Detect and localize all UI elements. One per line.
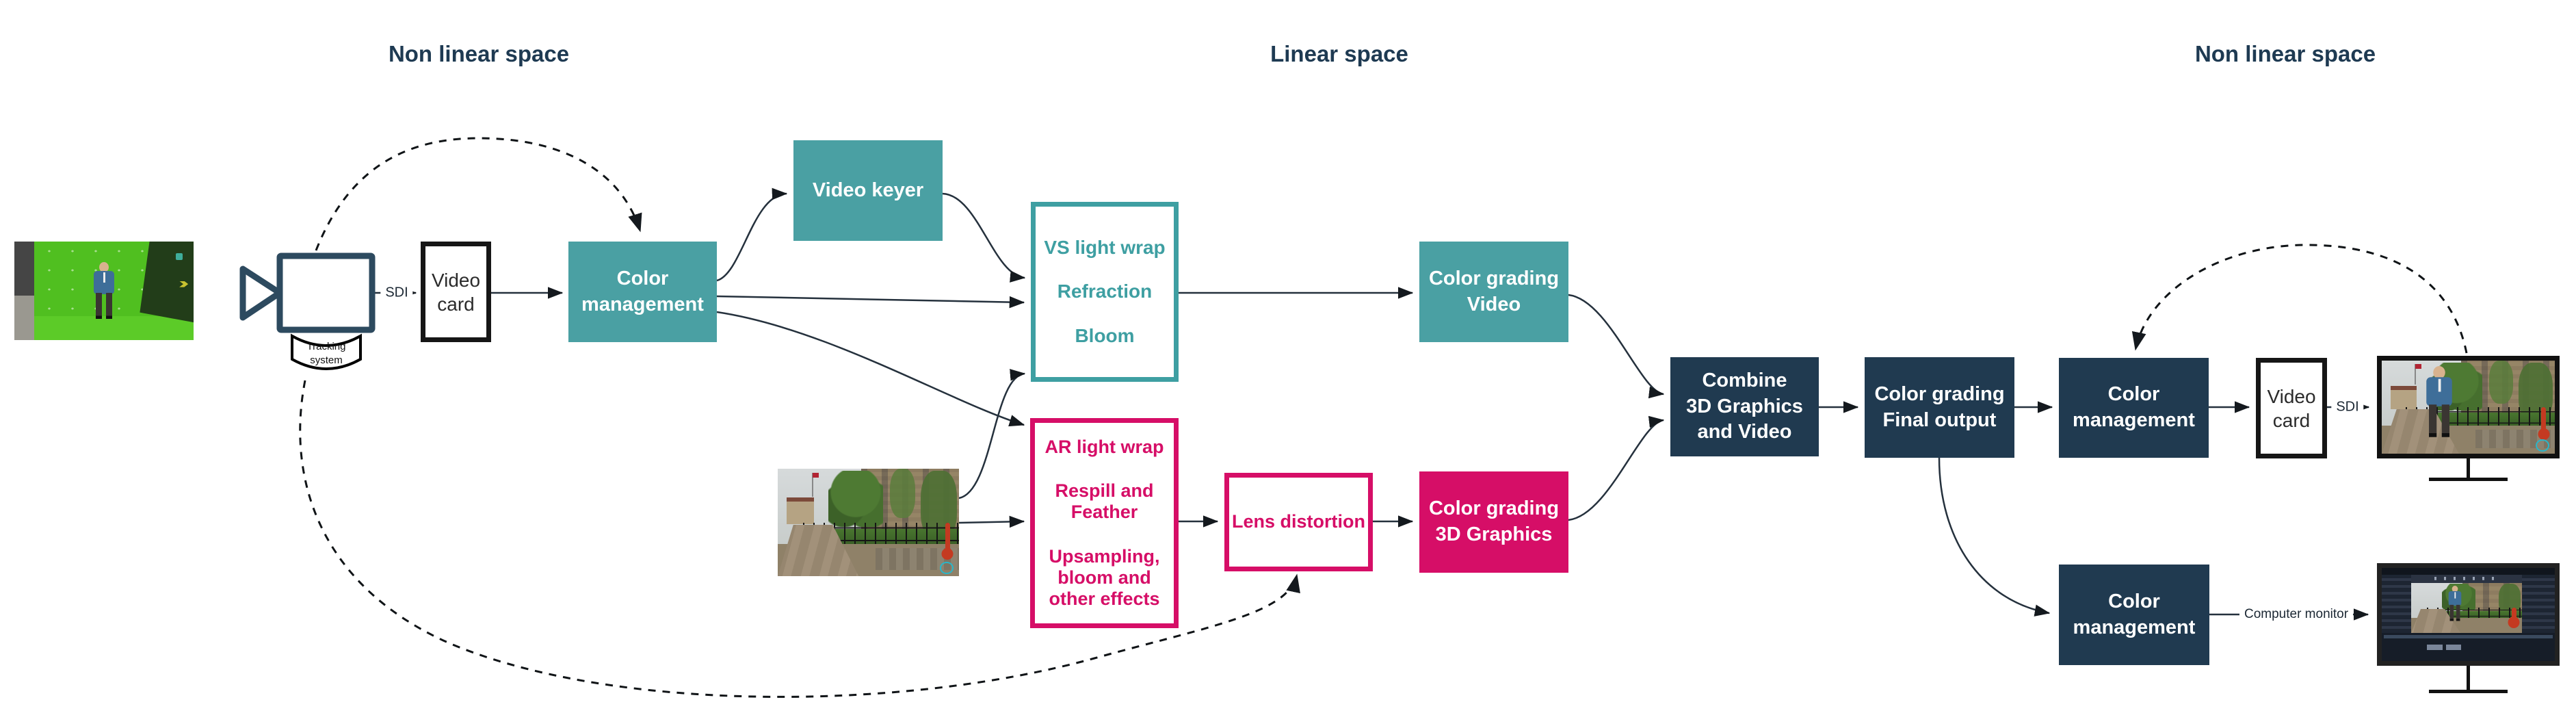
arrow-colormgmt-to-ar <box>717 312 1024 425</box>
color-management-in-box: Color management <box>568 242 717 342</box>
color-grading-video-box: Color grading Video <box>1419 242 1568 342</box>
3d-graphics-photo <box>778 469 959 576</box>
dashed-arrow-monitor-to-colormgmt <box>2135 245 2467 353</box>
monitor-stand-neck <box>2467 458 2470 478</box>
color-grading-3d-box: Color grading 3D Graphics <box>1419 471 1568 573</box>
arrow-colormgmt-to-keyer <box>717 194 787 281</box>
camera-icon <box>243 256 372 330</box>
header-linear: Linear space <box>1270 41 1408 67</box>
viewport-presenter <box>2445 586 2464 623</box>
arrow-keyer-to-vs <box>943 194 1025 278</box>
atom-graphic <box>940 562 954 574</box>
arrow-graphics-to-vs <box>959 374 1025 498</box>
broadcast-monitor <box>2377 356 2560 458</box>
studio-wall <box>14 242 34 340</box>
computer-monitor-screen <box>2377 563 2560 666</box>
panel-logo-icon <box>176 253 183 260</box>
color-management-out-box: Color management <box>2059 358 2209 458</box>
respill-feather-label: Respill and Feather <box>1055 480 1153 523</box>
presenter-figure <box>89 262 119 322</box>
upsampling-label: Upsampling, bloom and other effects <box>1049 546 1159 610</box>
computer-monitor-label: Computer monitor <box>2239 607 2353 622</box>
sdi-label-out: SDI <box>2331 400 2363 415</box>
monitor-stand-base <box>2429 478 2508 481</box>
computer-monitor-stand-neck <box>2467 666 2470 690</box>
sdi-label-in: SDI <box>380 285 412 301</box>
lens-distortion-box: Lens distortion <box>1224 473 1373 571</box>
arrow-cgfinal-to-colormgmt-monitor <box>1939 458 2049 613</box>
computer-monitor-stand-base <box>2429 690 2508 693</box>
header-nonlinear-right: Non linear space <box>2195 41 2376 67</box>
diagram-canvas: Non linear space Linear space Non linear… <box>0 0 2576 726</box>
arrow-cgvideo-to-combine <box>1568 295 1664 394</box>
green-screen-photo <box>14 242 194 340</box>
editor-viewport <box>2411 583 2522 633</box>
color-grading-final-box: Color grading Final output <box>1865 357 2014 458</box>
arrow-cg3d-to-combine <box>1568 420 1664 520</box>
bloom-label: Bloom <box>1075 324 1134 348</box>
composited-presenter <box>2421 366 2458 441</box>
arrow-graphics-to-ar <box>959 521 1024 523</box>
dashed-arrow-camera-to-colormgmt <box>316 138 640 250</box>
video-keyer-box: Video keyer <box>793 140 943 241</box>
video-card-in-box: Video card <box>421 242 491 342</box>
ar-light-wrap-label: AR light wrap <box>1045 437 1164 458</box>
refraction-label: Refraction <box>1057 279 1152 304</box>
vs-effects-box: VS light wrap Refraction Bloom <box>1031 202 1179 382</box>
color-management-monitor-box: Color management <box>2059 565 2209 665</box>
vs-light-wrap-label: VS light wrap <box>1044 235 1165 260</box>
ar-effects-box: AR light wrap Respill and Feather Upsamp… <box>1030 418 1179 628</box>
combine-box: Combine 3D Graphics and Video <box>1670 357 1819 456</box>
header-nonlinear-left: Non linear space <box>389 41 569 67</box>
arrow-colormgmt-to-vs <box>717 296 1024 302</box>
thermometer-graphic <box>945 523 950 555</box>
tracking-system-label: Tracking system <box>291 340 362 367</box>
video-card-out-box: Video card <box>2256 358 2327 458</box>
